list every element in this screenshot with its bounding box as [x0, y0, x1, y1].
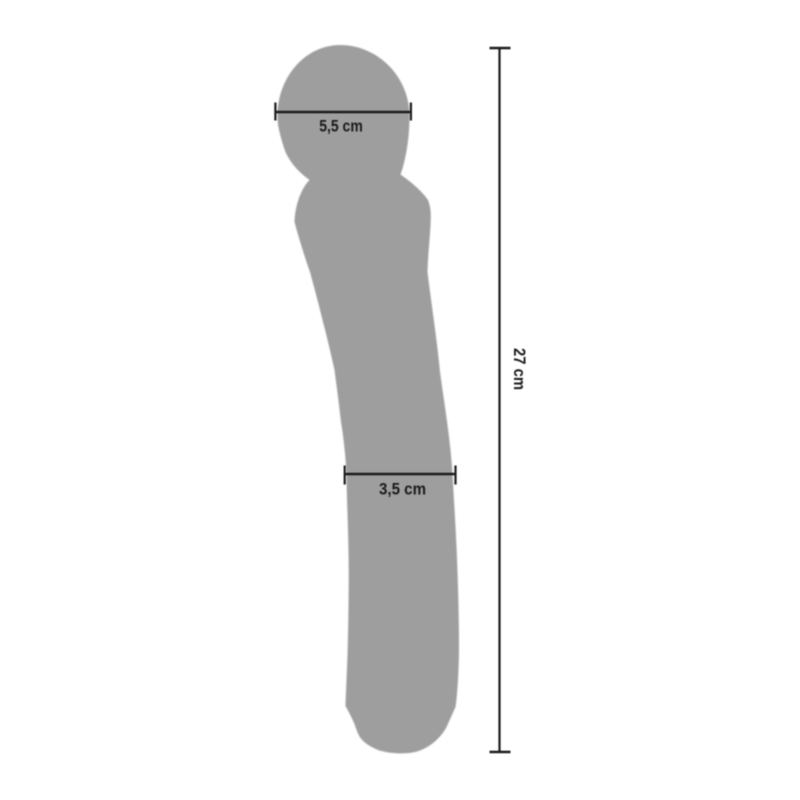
svg-text:5,5 cm: 5,5 cm [319, 117, 363, 136]
svg-text:27 cm: 27 cm [510, 348, 529, 390]
svg-text:3,5 cm: 3,5 cm [379, 479, 426, 498]
